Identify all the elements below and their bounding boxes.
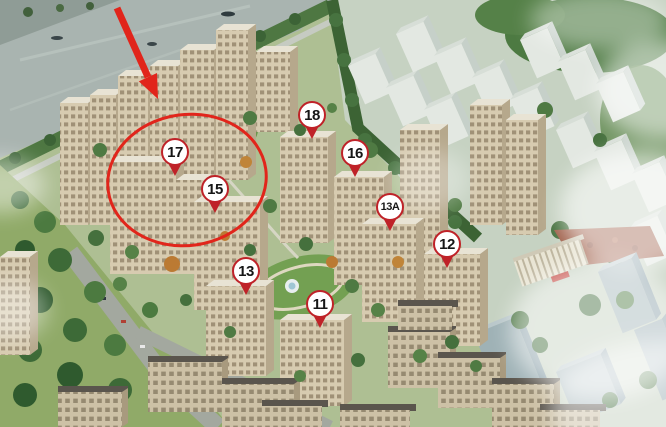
building-marker-12[interactable]: 12 xyxy=(433,230,461,268)
building-marker-13A[interactable]: 13A xyxy=(376,193,404,231)
marker-circle: 13A xyxy=(376,193,404,221)
marker-label: 13A xyxy=(381,201,400,213)
marker-circle: 16 xyxy=(341,139,369,167)
site-rendering-background xyxy=(0,0,666,427)
marker-circle: 17 xyxy=(161,138,189,166)
building-marker-15[interactable]: 15 xyxy=(201,175,229,213)
marker-pointer-icon xyxy=(168,164,183,176)
marker-label: 11 xyxy=(313,296,328,313)
marker-pointer-icon xyxy=(348,165,363,177)
marker-circle: 18 xyxy=(298,101,326,129)
marker-label: 15 xyxy=(207,181,223,198)
marker-pointer-icon xyxy=(305,127,320,139)
marker-circle: 15 xyxy=(201,175,229,203)
building-marker-18[interactable]: 18 xyxy=(298,101,326,139)
marker-circle: 11 xyxy=(306,290,334,318)
aerial-site-view: 17 15 18 16 13A 12 13 11 xyxy=(0,0,666,427)
marker-pointer-icon xyxy=(313,316,328,328)
marker-circle: 12 xyxy=(433,230,461,258)
building-marker-17[interactable]: 17 xyxy=(161,138,189,176)
marker-pointer-icon xyxy=(208,201,223,213)
marker-label: 12 xyxy=(439,236,455,253)
marker-pointer-icon xyxy=(440,256,455,268)
marker-label: 17 xyxy=(167,144,183,161)
marker-label: 13 xyxy=(238,263,254,280)
building-marker-11[interactable]: 11 xyxy=(306,290,334,328)
marker-pointer-icon xyxy=(239,283,254,295)
marker-label: 16 xyxy=(347,145,363,162)
marker-pointer-icon xyxy=(383,219,398,231)
building-marker-16[interactable]: 16 xyxy=(341,139,369,177)
marker-circle: 13 xyxy=(232,257,260,285)
marker-label: 18 xyxy=(304,107,320,124)
building-marker-13[interactable]: 13 xyxy=(232,257,260,295)
